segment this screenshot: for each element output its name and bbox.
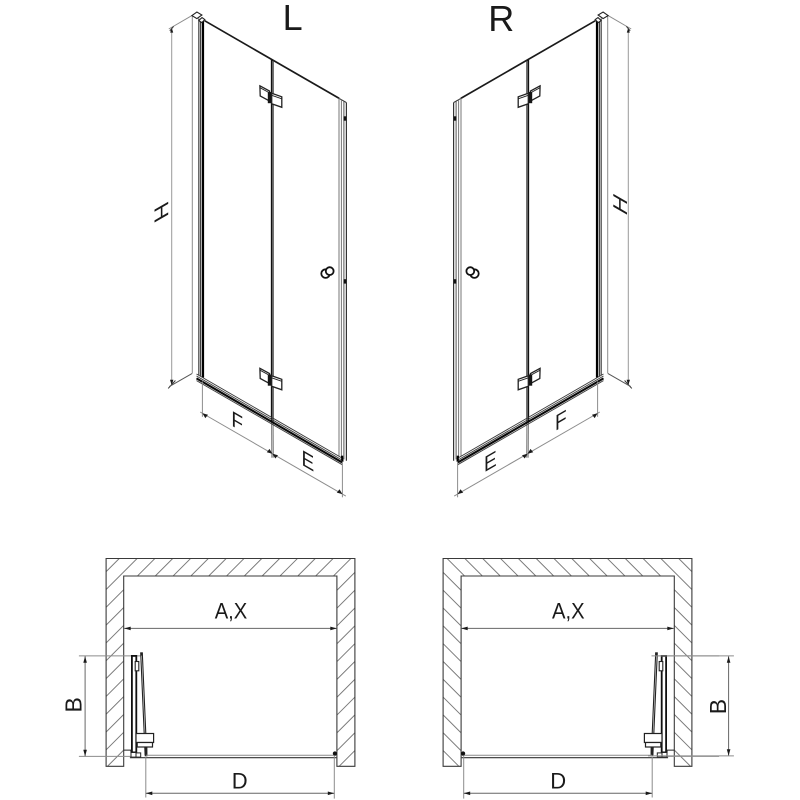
svg-text:H: H [150, 197, 173, 227]
svg-text:F: F [555, 404, 567, 436]
svg-text:R: R [488, 0, 514, 39]
svg-text:D: D [232, 769, 248, 794]
svg-text:B: B [705, 699, 731, 714]
svg-text:L: L [283, 0, 303, 38]
svg-text:F: F [231, 405, 243, 437]
svg-text:B: B [61, 697, 87, 712]
svg-text:D: D [550, 769, 566, 794]
svg-text:A,X: A,X [552, 600, 585, 624]
svg-text:A,X: A,X [215, 600, 248, 624]
